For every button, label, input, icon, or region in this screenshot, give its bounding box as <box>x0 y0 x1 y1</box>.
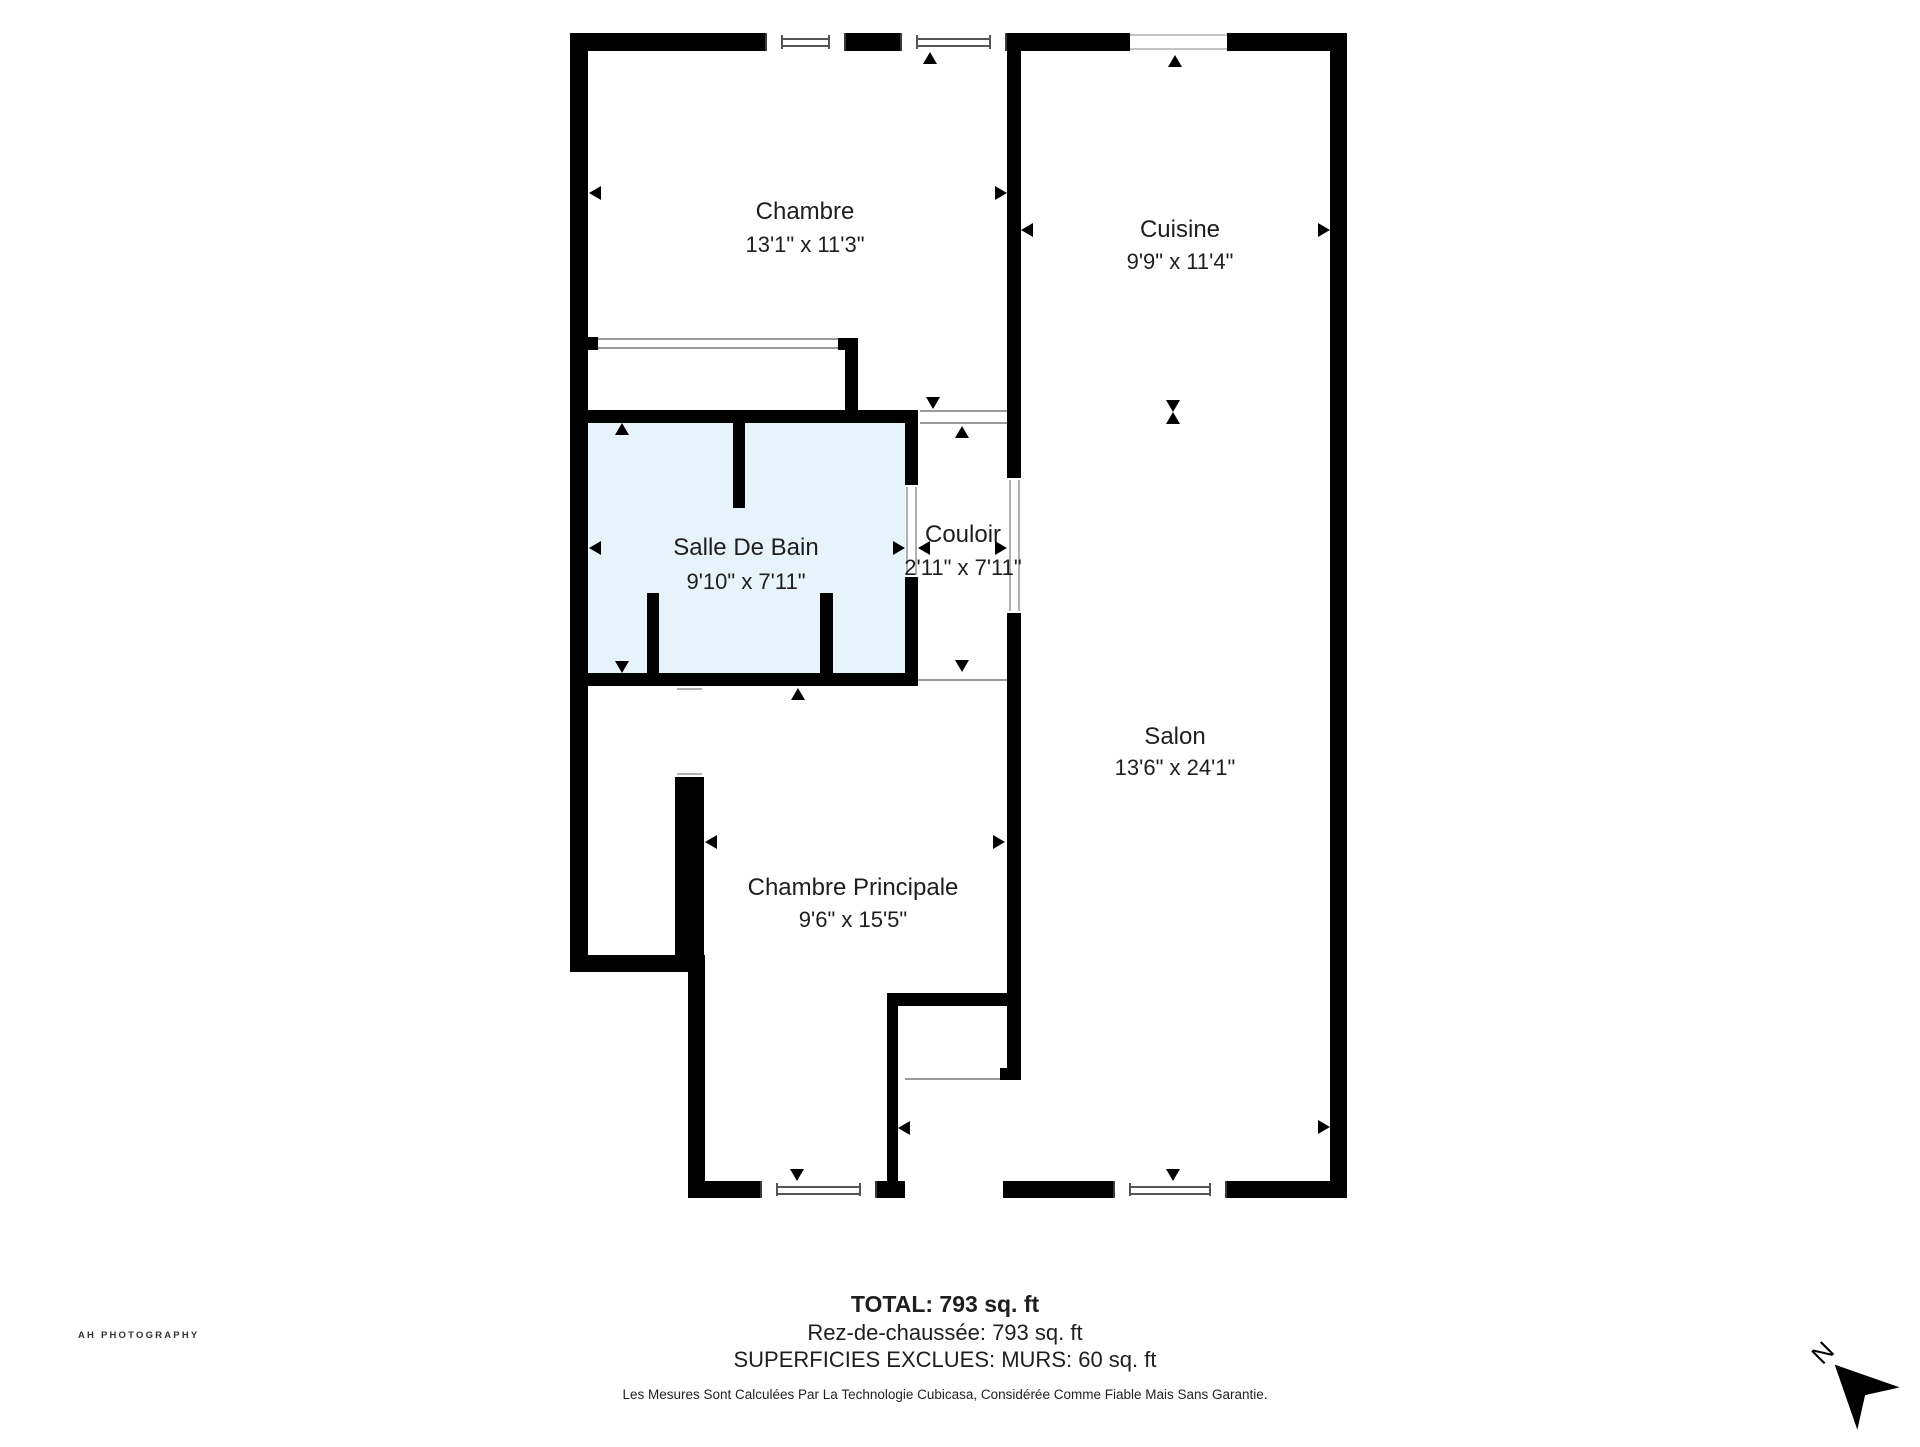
wall <box>1007 613 1021 1080</box>
room-dims-chambre-principale: 9'6" x 15'5" <box>799 907 907 933</box>
measure-arrow <box>1168 55 1182 67</box>
wall <box>820 593 833 673</box>
measure-arrow <box>923 52 937 64</box>
measure-arrow <box>705 835 717 849</box>
measure-arrow <box>893 541 905 555</box>
closet-door-jamb-line <box>677 773 702 775</box>
wall <box>675 777 704 972</box>
excluded-area-text: SUPERFICIES EXCLUES: MURS: 60 sq. ft <box>545 1346 1345 1373</box>
measure-arrow <box>1166 400 1180 412</box>
wall <box>887 993 898 1181</box>
room-label-chambre: Chambre <box>756 198 855 226</box>
measure-arrow <box>1318 223 1330 237</box>
wall <box>688 955 705 1198</box>
room-dims-salle-de-bain: 9'10" x 7'11" <box>686 569 805 595</box>
measure-arrow <box>955 426 969 438</box>
wall <box>570 33 588 972</box>
closet-opening-line <box>598 347 838 349</box>
measure-arrow <box>898 1121 910 1135</box>
room-label-chambre-principale: Chambre Principale <box>748 874 959 902</box>
measure-arrow <box>1166 1169 1180 1181</box>
measure-arrow <box>955 660 969 672</box>
wall <box>1007 51 1021 478</box>
room-label-couloir: Couloir <box>925 521 1001 549</box>
measure-arrow <box>589 186 601 200</box>
salon-door-jamb-line <box>1009 480 1011 611</box>
wall <box>905 410 918 485</box>
salon-door-jamb-line <box>1018 480 1020 611</box>
room-dims-salon: 13'6" x 24'1" <box>1115 755 1236 781</box>
measure-arrow <box>995 186 1007 200</box>
disclaimer-text: Les Mesures Sont Calculées Par La Techno… <box>545 1387 1345 1402</box>
entry-boundary-line <box>905 1078 1002 1080</box>
couloir-bottom-boundary-line <box>918 679 1007 681</box>
wall <box>588 337 598 350</box>
measure-arrow <box>926 397 940 409</box>
balcony-door-line <box>1130 34 1227 36</box>
measure-arrow <box>993 835 1005 849</box>
area-summary: TOTAL: 793 sq. ft Rez-de-chaussée: 793 s… <box>545 1290 1345 1402</box>
closet-opening-line <box>598 338 838 340</box>
room-dims-couloir: 2'11" x 7'11" <box>904 555 1021 581</box>
window <box>765 33 846 51</box>
floorplan-page: { "plan": { "rooms": { "chambre": {"name… <box>0 0 1920 1440</box>
room-dims-chambre: 13'1" x 11'3" <box>745 232 864 258</box>
wall <box>570 410 918 423</box>
measure-arrow <box>1318 1120 1330 1134</box>
wall <box>905 577 918 686</box>
wall <box>1000 1068 1021 1080</box>
measure-arrow <box>1021 223 1033 237</box>
closet-door-jamb-line <box>677 688 702 690</box>
balcony-door-line <box>1130 48 1227 50</box>
measure-arrow <box>589 541 601 555</box>
wall <box>887 993 1021 1006</box>
window <box>900 33 1007 51</box>
wall <box>845 350 858 410</box>
brand-logo: AH PHOTOGRAPHY <box>78 1330 199 1341</box>
measure-arrow <box>791 688 805 700</box>
measure-arrow <box>615 661 629 673</box>
measure-arrow <box>615 423 629 435</box>
entrance-opening <box>905 1181 1003 1198</box>
wall <box>838 338 858 350</box>
window <box>760 1181 877 1198</box>
total-area-text: TOTAL: 793 sq. ft <box>545 1290 1345 1319</box>
floorplan-canvas: Chambre 13'1" x 11'3" Cuisine 9'9" x 11'… <box>0 0 1920 1440</box>
wall <box>733 423 745 508</box>
wall <box>647 593 659 673</box>
window <box>1113 1181 1227 1198</box>
room-label-salle-de-bain: Salle De Bain <box>673 534 818 562</box>
wall <box>1330 33 1347 1198</box>
floor-area-text: Rez-de-chaussée: 793 sq. ft <box>545 1319 1345 1346</box>
measure-arrow <box>1166 412 1180 424</box>
couloir-top-boundary-line <box>920 422 1007 424</box>
room-dims-cuisine: 9'9" x 11'4" <box>1127 249 1234 275</box>
room-label-salon: Salon <box>1144 723 1205 751</box>
room-label-cuisine: Cuisine <box>1140 216 1220 244</box>
wall <box>570 673 918 686</box>
couloir-top-boundary-line <box>920 410 1007 412</box>
measure-arrow <box>790 1169 804 1181</box>
